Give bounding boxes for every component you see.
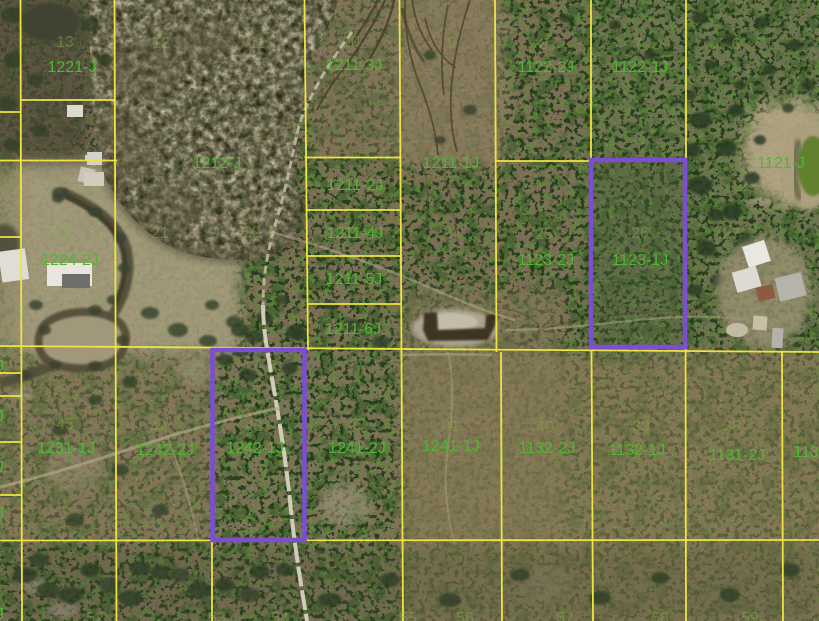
svg-text:1211-4J: 1211-4J xyxy=(327,225,384,242)
svg-text:39: 39 xyxy=(632,418,650,435)
svg-text:6: 6 xyxy=(732,36,741,53)
svg-text:44: 44 xyxy=(150,419,168,436)
svg-text:1242-2J: 1242-2J xyxy=(136,442,194,459)
svg-text:113: 113 xyxy=(793,444,819,461)
svg-text:1132-1J: 1132-1J xyxy=(609,442,666,459)
svg-text:J: J xyxy=(0,606,4,621)
svg-text:27: 27 xyxy=(722,226,740,243)
svg-text:43: 43 xyxy=(245,418,263,435)
svg-text:57: 57 xyxy=(556,610,574,621)
svg-text:55: 55 xyxy=(399,610,417,621)
svg-text:1122-2J: 1122-2J xyxy=(518,59,575,76)
svg-text:1132-2J: 1132-2J xyxy=(519,440,576,457)
svg-text:59: 59 xyxy=(741,610,759,621)
svg-text:41: 41 xyxy=(442,418,460,435)
svg-text:52: 52 xyxy=(86,610,104,621)
svg-text:26: 26 xyxy=(631,225,649,242)
svg-text:11: 11 xyxy=(249,35,266,52)
svg-text:1211-1J: 1211-1J xyxy=(423,155,480,172)
svg-text:J: J xyxy=(0,408,4,425)
svg-text:1122-1J: 1122-1J xyxy=(612,59,669,76)
svg-text:1221-J: 1221-J xyxy=(48,59,97,76)
svg-text:25: 25 xyxy=(535,226,553,243)
svg-text:38: 38 xyxy=(723,418,741,435)
svg-text:1121-J: 1121-J xyxy=(757,155,805,172)
svg-text:56: 56 xyxy=(456,610,474,621)
svg-text:1231-1J: 1231-1J xyxy=(37,440,95,457)
svg-text:J: J xyxy=(0,459,4,476)
svg-text:1241-1J: 1241-1J xyxy=(422,438,480,455)
svg-text:9: 9 xyxy=(448,35,457,52)
svg-text:10: 10 xyxy=(342,34,360,51)
svg-text:1224-2J: 1224-2J xyxy=(41,252,99,269)
svg-text:53: 53 xyxy=(208,610,226,621)
svg-text:1123-2J: 1123-2J xyxy=(518,252,575,269)
svg-text:1211-5J: 1211-5J xyxy=(326,271,383,288)
svg-text:24: 24 xyxy=(443,225,461,242)
svg-text:21: 21 xyxy=(151,225,169,242)
svg-text:45: 45 xyxy=(56,416,74,433)
svg-text:8: 8 xyxy=(540,36,549,53)
svg-text:1241-2J: 1241-2J xyxy=(328,440,386,457)
svg-text:1211-3J: 1211-3J xyxy=(326,57,383,74)
svg-text:1211-6J: 1211-6J xyxy=(325,321,382,338)
svg-text:42: 42 xyxy=(348,416,366,433)
svg-text:1211-2J: 1211-2J xyxy=(327,177,384,194)
svg-text:58: 58 xyxy=(651,610,669,621)
svg-text:1123-1J: 1123-1J xyxy=(612,252,669,269)
svg-text:J: J xyxy=(0,505,4,522)
svg-text:1212-J: 1212-J xyxy=(193,155,242,172)
svg-text:J: J xyxy=(0,358,4,375)
svg-text:7: 7 xyxy=(634,36,643,53)
svg-text:22: 22 xyxy=(243,224,261,241)
svg-text:40: 40 xyxy=(536,419,554,436)
svg-text:54: 54 xyxy=(271,610,289,621)
svg-text:1242-1J: 1242-1J xyxy=(226,440,284,457)
svg-text:13: 13 xyxy=(56,34,74,51)
svg-text:12: 12 xyxy=(152,35,170,52)
svg-text:20: 20 xyxy=(54,226,72,243)
svg-text:1131-2J: 1131-2J xyxy=(709,447,766,464)
